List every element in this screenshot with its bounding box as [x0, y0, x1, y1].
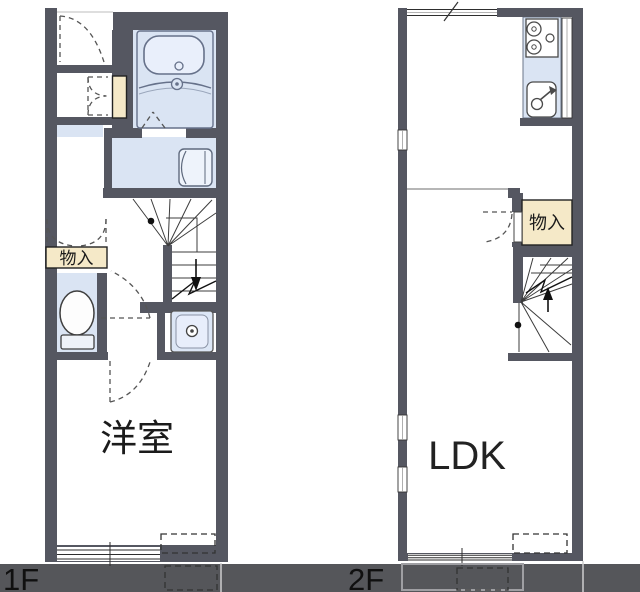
- room-label-ldk: LDK: [428, 434, 506, 478]
- ground-band: [0, 564, 640, 592]
- shoe-cabinet: [113, 76, 127, 118]
- window-2f-west-mid: [398, 415, 407, 440]
- small-burner: [546, 34, 554, 42]
- stair-dot: [148, 218, 155, 225]
- ground-strip: [0, 564, 640, 592]
- stair-treads-1f: [133, 199, 216, 291]
- toilet: [60, 291, 94, 349]
- entrance-door-swing: [57, 12, 113, 62]
- bedroom-door-swing: [110, 361, 150, 402]
- storage-label-2f: 物入: [529, 213, 565, 233]
- stair-newel-2f: [513, 257, 523, 303]
- washing-machine: [179, 149, 212, 186]
- closet-door-swing: [88, 77, 108, 115]
- window-2f-west-upper: [398, 130, 407, 150]
- tub-drain: [175, 62, 183, 70]
- floor-plan-drawing: 洋室 物入: [0, 0, 640, 592]
- floor-label-2f: 2F: [348, 562, 384, 592]
- kitchen-sink: [527, 82, 557, 117]
- storage-door-panel: [514, 212, 522, 242]
- floor-label-1f: 1F: [3, 562, 39, 592]
- burner: [527, 22, 541, 36]
- stair-dot: [515, 322, 522, 329]
- stair-treads-2f: [519, 258, 572, 352]
- staircase-1f: [133, 199, 216, 303]
- window-2f-north: [407, 2, 497, 21]
- storage-door-swing-2f: [483, 212, 512, 242]
- stair-newel: [163, 245, 172, 303]
- window-2f-east-kitchen: [562, 18, 572, 118]
- hall-step-area: [57, 125, 103, 137]
- floorplan-1f: 洋室 物入: [45, 8, 228, 592]
- toilet-base: [61, 335, 94, 349]
- room-label-western-room: 洋室: [100, 418, 174, 459]
- floor-plan-page: 洋室 物入: [0, 0, 640, 592]
- floorplan-2f: LDK 物入: [398, 2, 583, 592]
- stove: [526, 19, 558, 57]
- washbasin: [171, 311, 213, 352]
- staircase-2f: [515, 258, 572, 352]
- equipment-outline-2f-inside: [513, 534, 567, 553]
- burner: [527, 40, 541, 54]
- window-2f-west-lower: [398, 467, 407, 492]
- stair-break-line: [172, 281, 216, 299]
- storage-label-1f: 物入: [60, 249, 94, 268]
